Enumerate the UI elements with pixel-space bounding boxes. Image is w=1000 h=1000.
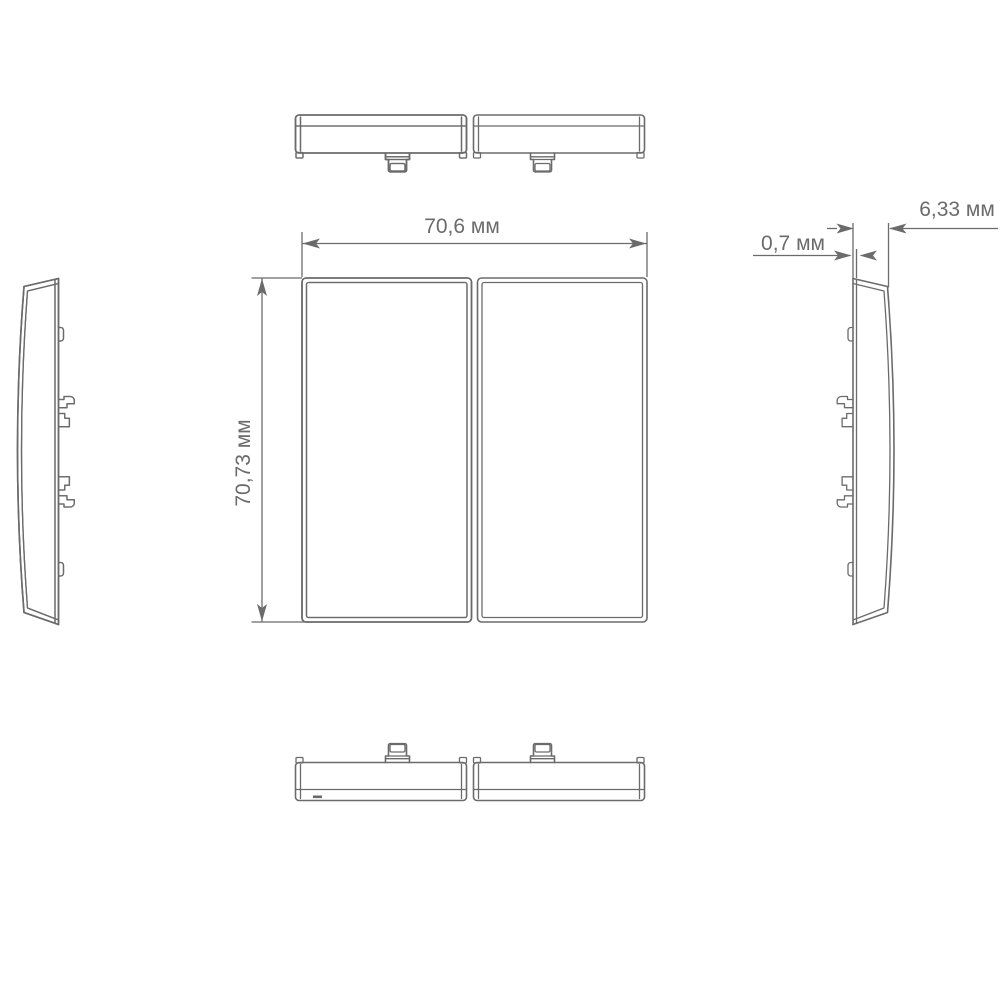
front-thickness-label: 0,7 мм: [761, 232, 825, 255]
side-inner-curve: [22, 284, 59, 621]
rocker-outer-border: [302, 278, 472, 622]
clip-tab-inner: [390, 164, 405, 172]
arrowhead-right: [837, 224, 855, 234]
right-side-view: [837, 279, 894, 625]
plan-block-outline: [296, 115, 467, 153]
width-dimension-label: 70,6 мм: [424, 215, 500, 238]
left-side-view: [18, 279, 75, 625]
height-dimension-label: 70,73 мм: [232, 419, 255, 506]
height-dimension: 70,73 мм: [232, 278, 309, 622]
bottom-view: [296, 744, 645, 801]
front-view: [302, 278, 647, 622]
top-view-left-key: [296, 115, 467, 172]
front-thickness-dimension: 0,7 мм: [753, 223, 877, 278]
top-view-right-key: [474, 115, 645, 172]
front-view-left-rocker: [302, 278, 472, 622]
bottom-view-keys: [296, 744, 645, 801]
left-side-profile: [18, 279, 75, 625]
width-dimension: 70,6 мм: [302, 215, 647, 277]
side-lower-details: [59, 477, 75, 576]
front-view-right-rocker: [478, 278, 648, 622]
right-side-profile: [837, 279, 894, 625]
depth-dimension-label: 6,33 мм: [919, 198, 995, 221]
arrowhead-left: [860, 251, 878, 261]
rocker-inner-border: [307, 283, 468, 618]
side-step-clip: [59, 414, 70, 427]
top-view: [296, 115, 645, 172]
side-outer-curve: [18, 279, 59, 625]
technical-drawing-canvas: 70,6 мм 70,73 мм 0,7 мм 6,33 мм: [0, 0, 1000, 1000]
